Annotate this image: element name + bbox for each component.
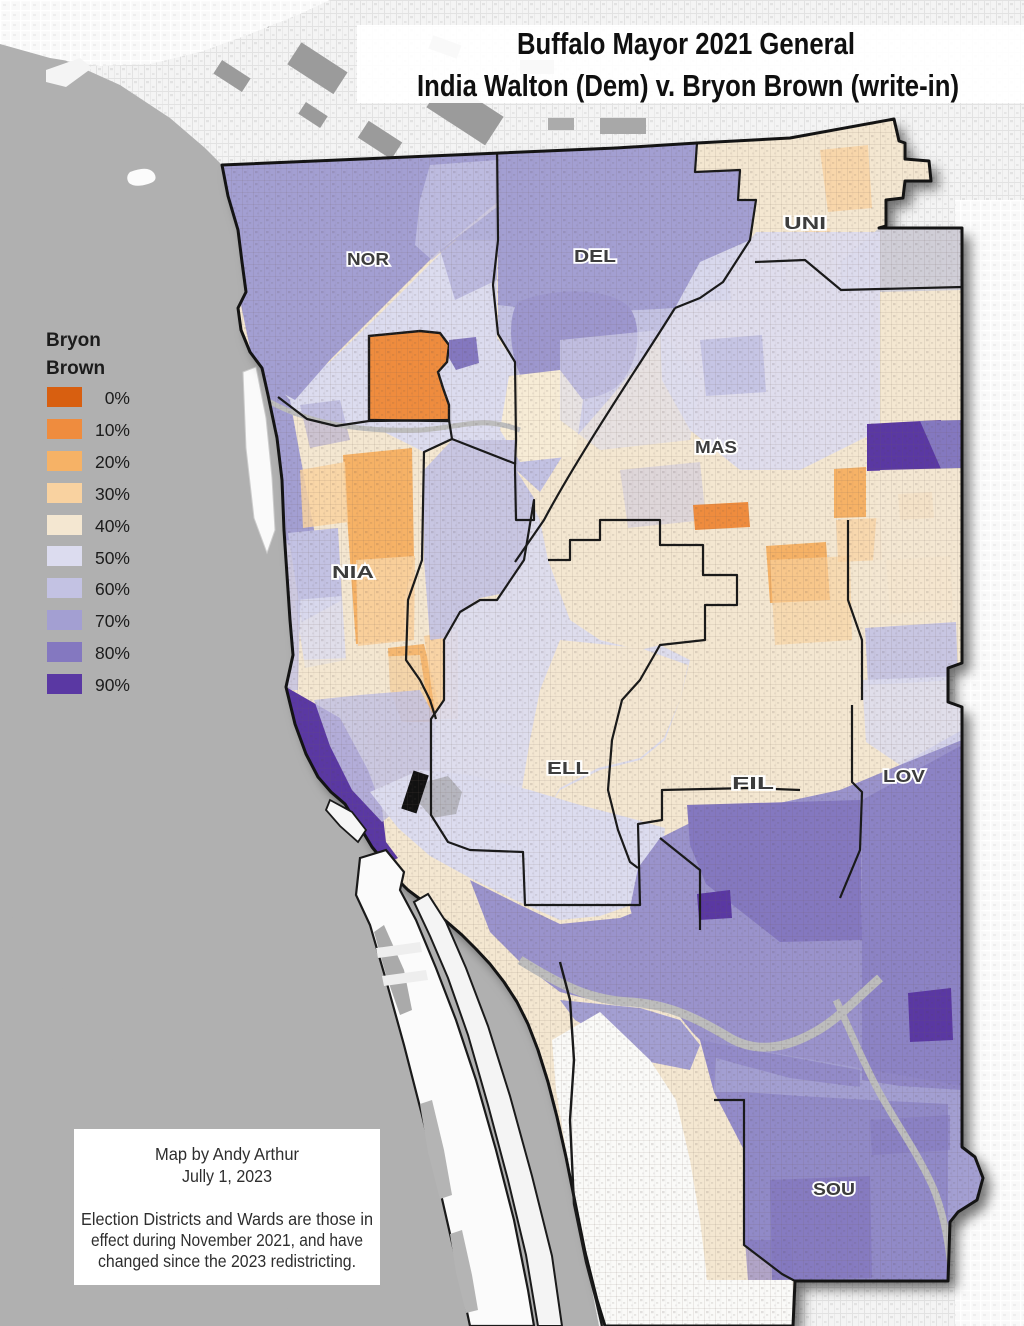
svg-text:MAS: MAS	[695, 437, 737, 457]
svg-text:effect during November 2021, a: effect during November 2021, and have	[91, 1230, 363, 1250]
svg-text:Jully 1, 2023: Jully 1, 2023	[182, 1166, 272, 1186]
svg-text:FIL: FIL	[732, 773, 774, 793]
svg-text:Map by Andy Arthur: Map by Andy Arthur	[155, 1144, 299, 1164]
svg-text:changed since the 2023 redistr: changed since the 2023 redistricting.	[98, 1251, 356, 1271]
svg-text:30%: 30%	[95, 484, 130, 504]
svg-text:SOU: SOU	[813, 1179, 855, 1199]
svg-text:40%: 40%	[95, 516, 130, 536]
svg-text:90%: 90%	[95, 675, 130, 695]
svg-text:India Walton (Dem) v. Bryon Br: India Walton (Dem) v. Bryon Brown (write…	[417, 68, 959, 103]
svg-text:10%: 10%	[95, 420, 130, 440]
svg-text:0%: 0%	[105, 388, 130, 408]
svg-text:NIA: NIA	[332, 562, 375, 582]
svg-text:UNI: UNI	[784, 213, 826, 233]
svg-text:80%: 80%	[95, 643, 130, 663]
svg-text:20%: 20%	[95, 452, 130, 472]
svg-text:Election Districts and Wards a: Election Districts and Wards are those i…	[81, 1209, 373, 1229]
svg-text:60%: 60%	[95, 579, 130, 599]
svg-text:Brown: Brown	[46, 358, 105, 379]
svg-text:50%: 50%	[95, 548, 130, 568]
svg-text:Buffalo Mayor 2021 General: Buffalo Mayor 2021 General	[517, 26, 855, 61]
svg-text:Bryon: Bryon	[46, 330, 101, 351]
svg-text:70%: 70%	[95, 611, 130, 631]
svg-text:NOR: NOR	[347, 249, 389, 269]
svg-text:DEL: DEL	[574, 246, 616, 266]
svg-text:ELL: ELL	[547, 758, 589, 778]
svg-text:LOV: LOV	[883, 766, 925, 786]
